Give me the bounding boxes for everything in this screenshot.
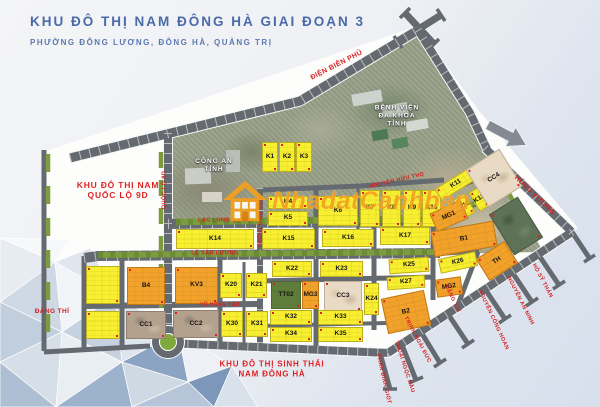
block-cc2: CC2 bbox=[173, 310, 219, 338]
area-label-nam-ql9d: KHU ĐÔ THỊ NAMQUỐC LỘ 9D bbox=[77, 180, 160, 200]
block-k15: K15 bbox=[262, 229, 315, 249]
landmark-benh-vien: BỆNH VIỆNĐA KHOATỈNH bbox=[375, 104, 419, 127]
block-k25: K25 bbox=[389, 257, 430, 275]
block-k32: K32 bbox=[270, 310, 312, 325]
block-k22: K22 bbox=[272, 261, 312, 277]
block-k35: K35 bbox=[318, 327, 363, 342]
block-k17: K17 bbox=[380, 227, 430, 245]
watermark-house-icon bbox=[222, 178, 268, 224]
block-b4: B4 bbox=[127, 267, 165, 305]
block-k1: K1 bbox=[262, 142, 278, 172]
block-k34: K34 bbox=[270, 327, 312, 342]
block-unlabeled bbox=[86, 266, 120, 304]
watermark: NhadatCanhban bbox=[222, 178, 470, 224]
block-k30: K30 bbox=[221, 311, 243, 337]
block-k3: K3 bbox=[296, 142, 312, 172]
page-title: KHU ĐÔ THỊ NAM ĐÔNG HÀ GIAI ĐOẠN 3 bbox=[30, 14, 365, 29]
block-mg3: MG3 bbox=[302, 281, 319, 309]
street-quoc-lo-9d: QUỐC LỘ 9D bbox=[162, 171, 169, 209]
street-vu-hong-tan: VŨ HỒNG TẤN bbox=[200, 302, 239, 308]
block-tt02: TT02 bbox=[271, 281, 301, 309]
block-k16: K16 bbox=[322, 229, 374, 247]
block-k14: K14 bbox=[176, 229, 254, 249]
street-dang-thi-west: ĐẶNG THÍ bbox=[35, 308, 70, 316]
block-cc3: CC3 bbox=[324, 281, 362, 312]
landmark-cong-an-tinh: CÔNG ANTỈNH bbox=[195, 158, 232, 174]
block-k27: K27 bbox=[387, 275, 426, 291]
block-kv3: KV3 bbox=[175, 267, 218, 304]
block-k20: K20 bbox=[220, 273, 242, 298]
page-subtitle: PHƯỜNG ĐÔNG LƯƠNG, ĐÔNG HÀ, QUẢNG TRỊ bbox=[30, 38, 272, 47]
street-le-van-luong: LÊ VĂN LƯƠNG bbox=[191, 251, 238, 258]
block-cc1: CC1 bbox=[126, 311, 166, 339]
block-k21: K21 bbox=[246, 273, 267, 298]
block-k2: K2 bbox=[279, 142, 295, 172]
master-plan-map: K1 K2 K3 K4 K5 K6 K7 K8 K9 K10 K11 K12 K… bbox=[0, 0, 600, 407]
block-k33: K33 bbox=[318, 310, 363, 325]
block-k31: K31 bbox=[246, 311, 268, 337]
area-label-sinh-thai: KHU ĐÔ THỊ SINH THÁINAM ĐÔNG HÀ bbox=[220, 359, 325, 378]
block-k23: K23 bbox=[320, 261, 363, 277]
block-k24: K24 bbox=[364, 283, 379, 315]
block-unlabeled bbox=[86, 311, 120, 339]
watermark-text: NhadatCanhban bbox=[272, 187, 470, 216]
